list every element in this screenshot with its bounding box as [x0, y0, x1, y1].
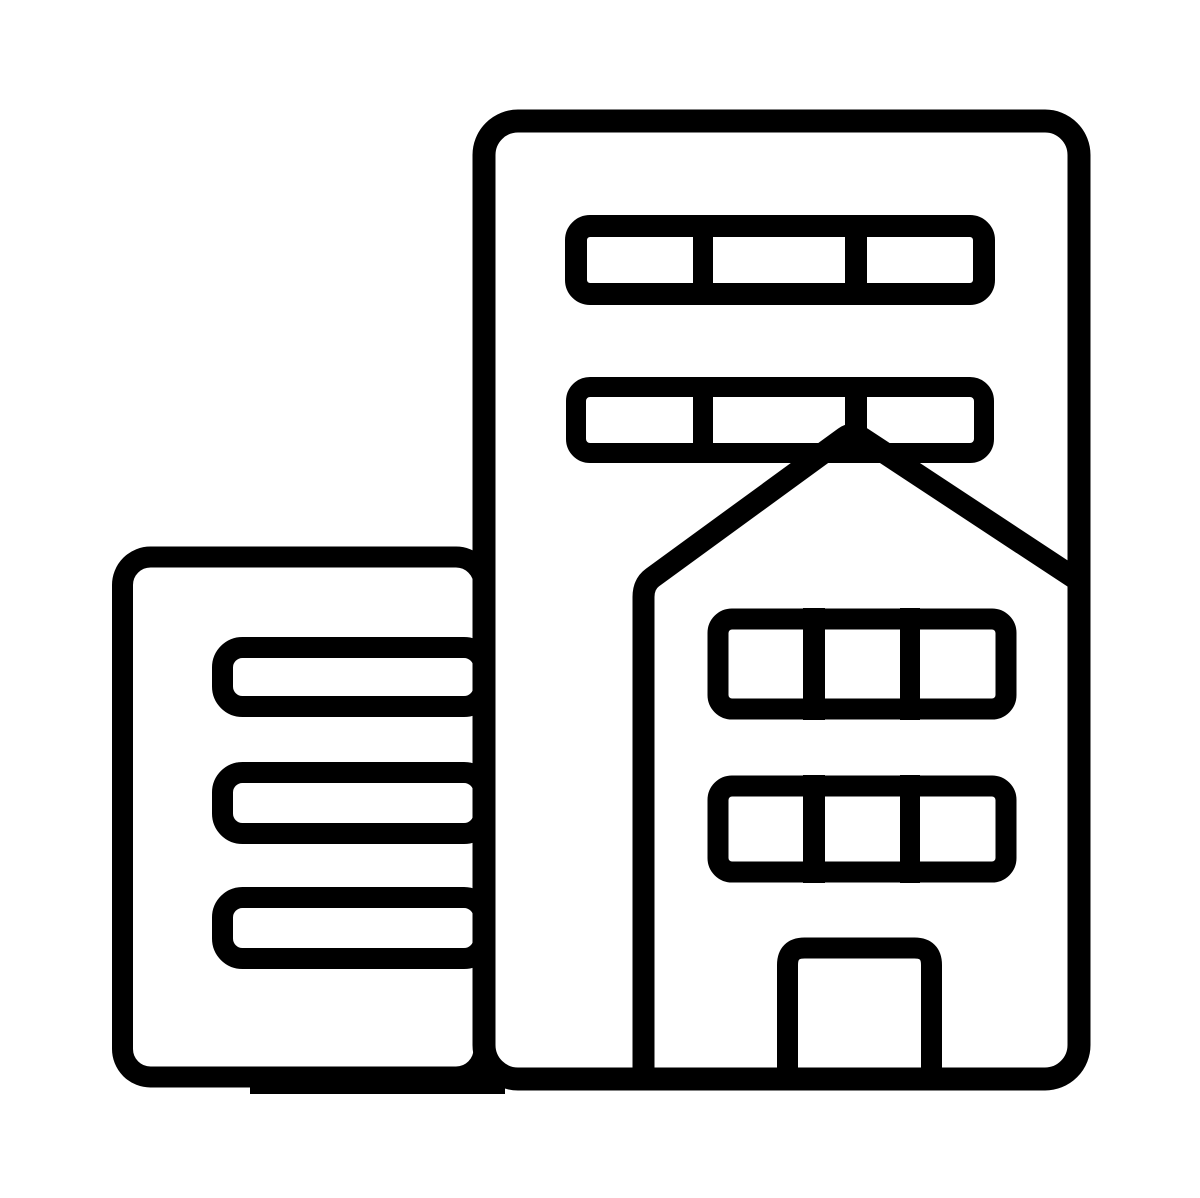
window-divider-icon: [693, 215, 713, 305]
office-buildings-icon: [0, 0, 1200, 1198]
window-divider-icon: [693, 377, 713, 462]
small-building-window-bar-2: [223, 773, 485, 834]
window-divider-icon: [900, 775, 920, 883]
small-building-outline: [123, 557, 485, 1077]
tall-building-window-row-2: [576, 387, 984, 453]
house-door: [788, 948, 932, 1085]
window-divider-icon: [845, 215, 867, 305]
small-building-window-bar-3: [223, 898, 485, 959]
house-roof-and-left-wall: [644, 434, 1080, 1090]
window-divider-icon: [803, 608, 825, 720]
small-building: [123, 557, 485, 1077]
tall-building-window-row-1: [576, 226, 984, 294]
house-window-row-1: [718, 619, 1006, 709]
tall-building: [484, 121, 1079, 1079]
small-building-window-bar-1: [223, 648, 485, 707]
icon-canvas: [0, 0, 1200, 1198]
house-window-row-2: [718, 786, 1006, 872]
window-divider-icon: [803, 775, 825, 883]
house: [644, 434, 1080, 1090]
window-divider-icon: [900, 608, 920, 720]
